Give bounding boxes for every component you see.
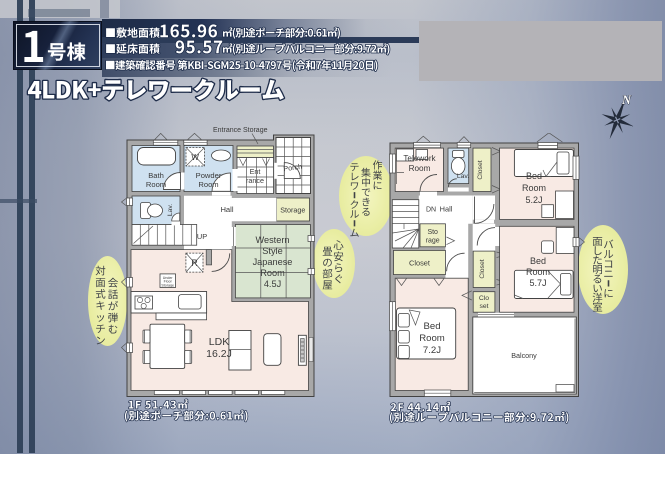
- svg-text:Room: Room: [198, 180, 218, 189]
- svg-text:Room: Room: [526, 267, 550, 277]
- svg-text:Bath: Bath: [148, 171, 164, 180]
- svg-text:DN: DN: [426, 207, 436, 214]
- svg-text:Room: Room: [522, 183, 546, 193]
- svg-text:Closet: Closet: [479, 259, 486, 278]
- svg-text:Closet: Closet: [409, 259, 430, 268]
- svg-text:5.2J: 5.2J: [525, 195, 542, 205]
- svg-text:Entrance Storage: Entrance Storage: [213, 127, 268, 134]
- svg-text:Ent: Ent: [250, 167, 261, 176]
- svg-text:7.2J: 7.2J: [423, 345, 441, 356]
- svg-text:Room: Room: [409, 164, 431, 173]
- svg-text:Telework: Telework: [403, 154, 436, 163]
- svg-text:Sto: Sto: [427, 229, 438, 236]
- svg-text:LDK: LDK: [209, 336, 229, 348]
- svg-text:Hall: Hall: [440, 205, 453, 214]
- svg-text:Japanese: Japanese: [253, 257, 293, 267]
- svg-text:Bed: Bed: [530, 256, 546, 266]
- svg-text:Closet: Closet: [477, 160, 484, 179]
- svg-text:Hall: Hall: [220, 205, 233, 214]
- svg-text:Style: Style: [262, 246, 282, 256]
- svg-text:rance: rance: [246, 176, 264, 185]
- svg-text:set: set: [479, 303, 488, 310]
- svg-text:Western: Western: [255, 235, 289, 245]
- svg-text:Lav.: Lav.: [167, 204, 174, 216]
- svg-text:rage: rage: [426, 238, 440, 245]
- svg-text:4.5J: 4.5J: [264, 279, 281, 289]
- svg-text:Bed: Bed: [526, 171, 542, 181]
- svg-text:Balcony: Balcony: [511, 351, 537, 360]
- svg-text:R: R: [191, 258, 198, 268]
- svg-text:N: N: [621, 93, 632, 107]
- svg-text:5.7J: 5.7J: [529, 278, 546, 288]
- svg-text:Powder: Powder: [196, 171, 222, 180]
- svg-text:UP: UP: [197, 232, 207, 241]
- svg-text:Clo: Clo: [479, 295, 489, 302]
- svg-text:W: W: [191, 153, 199, 162]
- svg-text:16.2J: 16.2J: [206, 348, 232, 360]
- svg-text:Bed: Bed: [423, 321, 440, 332]
- svg-text:Room: Room: [260, 268, 285, 278]
- svg-text:Storage: Storage: [280, 206, 305, 215]
- svg-text:Room: Room: [419, 333, 445, 344]
- svg-text:Room: Room: [146, 180, 166, 189]
- svg-text:Lav.: Lav.: [457, 173, 469, 180]
- svg-text:Storage: Storage: [161, 283, 174, 287]
